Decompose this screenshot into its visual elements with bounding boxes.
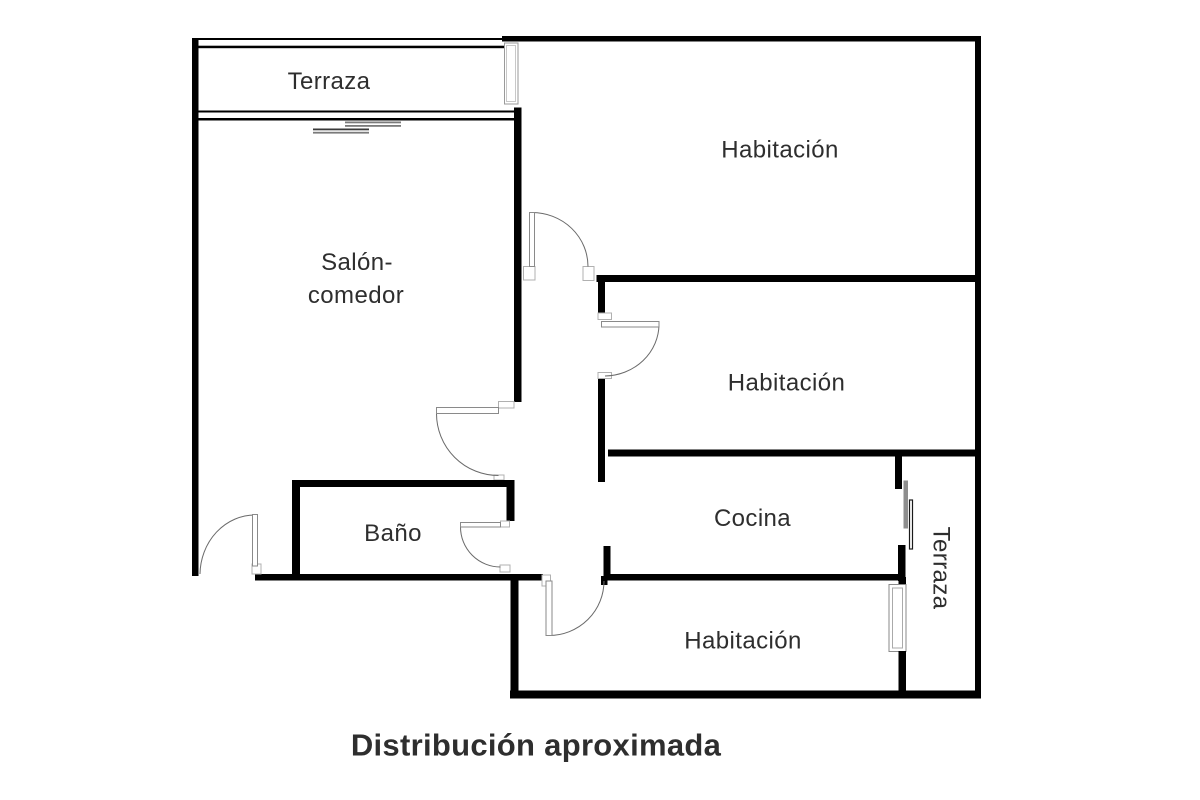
- svg-text:Baño: Baño: [364, 520, 422, 547]
- svg-text:Habitación: Habitación: [721, 137, 838, 164]
- svg-text:Terraza: Terraza: [928, 527, 955, 610]
- svg-text:Habitación: Habitación: [684, 628, 801, 655]
- svg-text:Salón-: Salón-: [321, 249, 393, 276]
- svg-text:Habitación: Habitación: [728, 370, 845, 397]
- svg-text:comedor: comedor: [308, 282, 404, 309]
- svg-text:Cocina: Cocina: [714, 505, 791, 532]
- svg-text:Terraza: Terraza: [288, 68, 371, 95]
- svg-text:Distribución aproximada: Distribución aproximada: [351, 728, 722, 763]
